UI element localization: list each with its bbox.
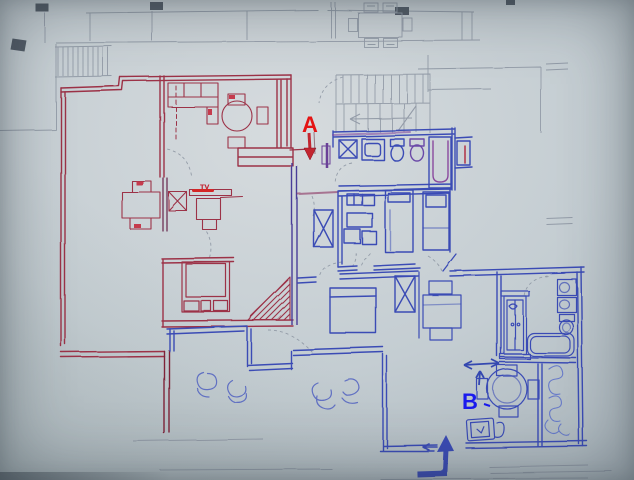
floor-plan-drawing: A B TV	[0, 0, 634, 480]
floor-plan-sketch-photo: A B TV	[0, 0, 634, 480]
tv-label: TV	[200, 183, 209, 191]
tall-cabinet	[500, 291, 530, 359]
label-b: B	[462, 389, 478, 414]
